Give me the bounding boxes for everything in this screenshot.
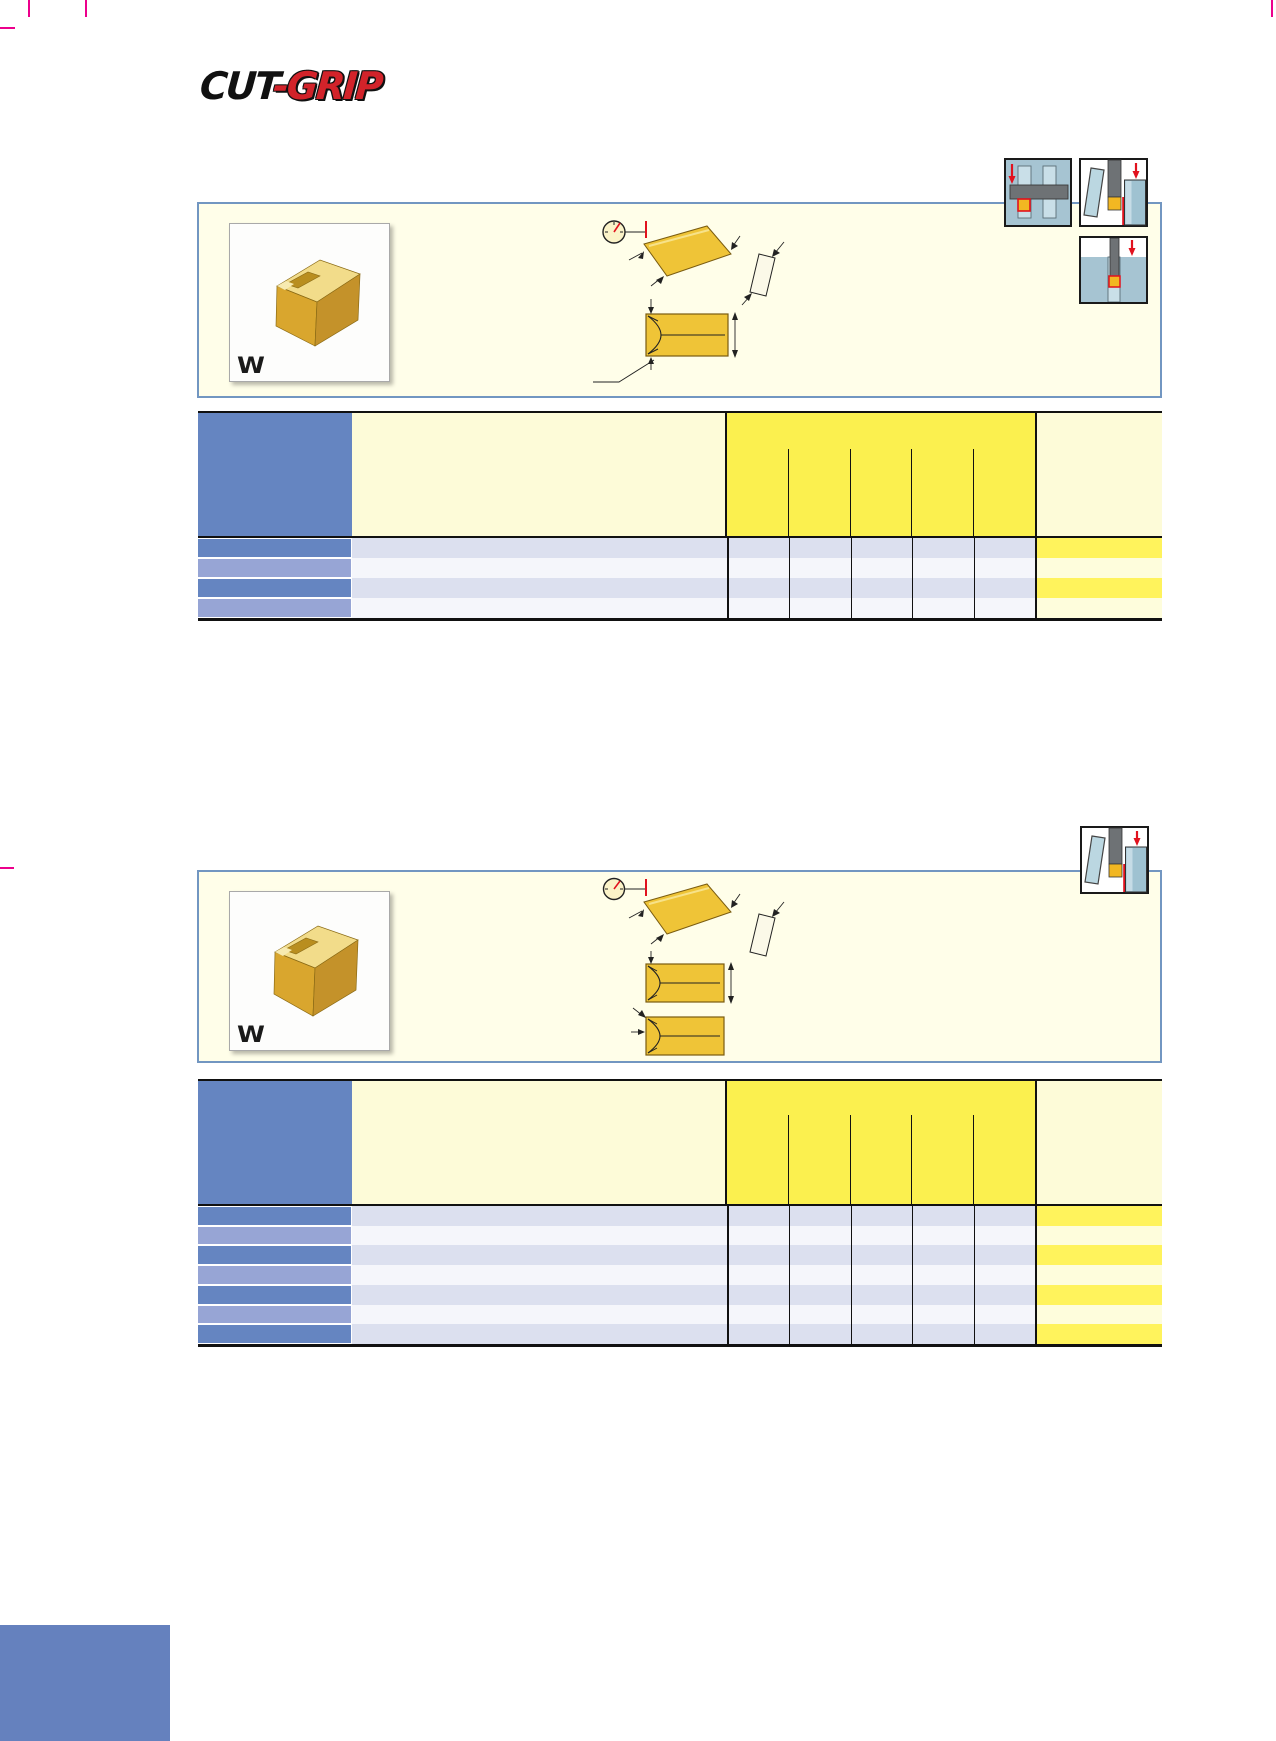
table-row <box>198 1265 1162 1285</box>
header-product-cell <box>198 413 352 536</box>
logo-text-cut: CUT <box>199 64 275 108</box>
row-dimensions-cells <box>727 578 1037 598</box>
technical-drawing-insert-views <box>199 872 1160 1061</box>
crop-mark <box>85 0 87 17</box>
row-dimensions-cells <box>727 538 1037 558</box>
row-dimensions-cells <box>727 1226 1037 1246</box>
cut-grip-logo: CUT-GRIP <box>198 64 411 110</box>
dimension-subcolumn <box>727 1115 788 1204</box>
row-product-cell <box>198 1324 352 1344</box>
row-grade-cell <box>1037 558 1162 578</box>
row-dimensions-cells <box>727 1324 1037 1344</box>
parting-off-icon <box>1080 826 1149 894</box>
row-designation-cell <box>352 598 727 618</box>
dimension-subcolumn <box>911 449 973 536</box>
row-dimensions-cells <box>727 1265 1037 1285</box>
table-row <box>198 598 1162 618</box>
row-dimensions-cells <box>727 1206 1037 1226</box>
row-grade-cell <box>1037 1324 1162 1344</box>
page-corner-color-block <box>0 1625 170 1741</box>
row-designation-cell <box>352 1265 727 1285</box>
row-grade-cell <box>1037 538 1162 558</box>
row-grade-cell <box>1037 1206 1162 1226</box>
row-designation-cell <box>352 1305 727 1325</box>
table-row <box>198 558 1162 578</box>
table-row <box>198 538 1162 558</box>
table-2-body <box>198 1206 1162 1344</box>
row-product-cell <box>198 1206 352 1226</box>
crop-mark <box>0 867 14 869</box>
face-groove-pulley-icon <box>1004 158 1072 227</box>
header-dimensions-cell <box>727 1081 1037 1204</box>
table-2-header <box>198 1081 1162 1206</box>
crop-mark <box>1271 0 1273 17</box>
row-dimensions-cells <box>727 1285 1037 1305</box>
dimension-subcolumn <box>973 1115 1035 1204</box>
row-designation-cell <box>352 1245 727 1265</box>
header-product-cell <box>198 1081 352 1204</box>
crop-mark <box>28 0 30 17</box>
dimensions-merged-band <box>727 1081 1035 1115</box>
crop-mark <box>0 27 15 29</box>
dimension-subcolumn <box>911 1115 973 1204</box>
row-product-cell <box>198 558 352 578</box>
row-dimensions-cells <box>727 558 1037 578</box>
row-designation-cell <box>352 1206 727 1226</box>
row-grade-cell <box>1037 598 1162 618</box>
header-designation-cell <box>352 1081 727 1204</box>
row-grade-cell <box>1037 578 1162 598</box>
product-panel-1: W <box>197 202 1162 398</box>
table-row <box>198 1285 1162 1305</box>
dimension-subcolumn <box>788 449 850 536</box>
row-product-cell <box>198 578 352 598</box>
row-designation-cell <box>352 1285 727 1305</box>
row-product-cell <box>198 1285 352 1305</box>
table-row <box>198 1226 1162 1246</box>
table-row <box>198 1324 1162 1344</box>
dimension-subcolumn <box>973 449 1035 536</box>
dimension-subcolumn <box>850 449 912 536</box>
logo-text-grip: -GRIP <box>272 64 383 108</box>
table-row <box>198 578 1162 598</box>
row-product-cell <box>198 598 352 618</box>
technical-drawing-insert-views <box>199 204 1160 396</box>
dimensions-merged-band <box>727 413 1035 449</box>
dimension-subcolumn <box>727 449 788 536</box>
header-grade-cell <box>1037 413 1162 536</box>
row-grade-cell <box>1037 1245 1162 1265</box>
row-product-cell <box>198 538 352 558</box>
dimension-subcolumn <box>788 1115 850 1204</box>
product-panel-2: W <box>197 870 1162 1063</box>
row-dimensions-cells <box>727 1305 1037 1325</box>
row-product-cell <box>198 1226 352 1246</box>
header-dimensions-cell <box>727 413 1037 536</box>
row-dimensions-cells <box>727 1245 1037 1265</box>
row-designation-cell <box>352 578 727 598</box>
table-row <box>198 1206 1162 1226</box>
row-product-cell <box>198 1245 352 1265</box>
row-grade-cell <box>1037 1305 1162 1325</box>
table-row <box>198 1305 1162 1325</box>
parting-off-icon <box>1079 158 1148 227</box>
deep-grooving-icon <box>1079 236 1148 304</box>
insert-spec-table-2 <box>198 1079 1162 1347</box>
row-designation-cell <box>352 558 727 578</box>
header-grade-cell <box>1037 1081 1162 1204</box>
row-grade-cell <box>1037 1265 1162 1285</box>
dimension-subcolumn <box>850 1115 912 1204</box>
table-row <box>198 1245 1162 1265</box>
row-designation-cell <box>352 538 727 558</box>
row-designation-cell <box>352 1226 727 1246</box>
row-grade-cell <box>1037 1226 1162 1246</box>
table-1-header <box>198 413 1162 538</box>
row-product-cell <box>198 1305 352 1325</box>
header-designation-cell <box>352 413 727 536</box>
row-product-cell <box>198 1265 352 1285</box>
table-1-body <box>198 538 1162 618</box>
row-grade-cell <box>1037 1285 1162 1305</box>
catalog-page: CUT-GRIP W <box>0 0 1276 1741</box>
insert-spec-table-1 <box>198 411 1162 621</box>
row-designation-cell <box>352 1324 727 1344</box>
row-dimensions-cells <box>727 598 1037 618</box>
